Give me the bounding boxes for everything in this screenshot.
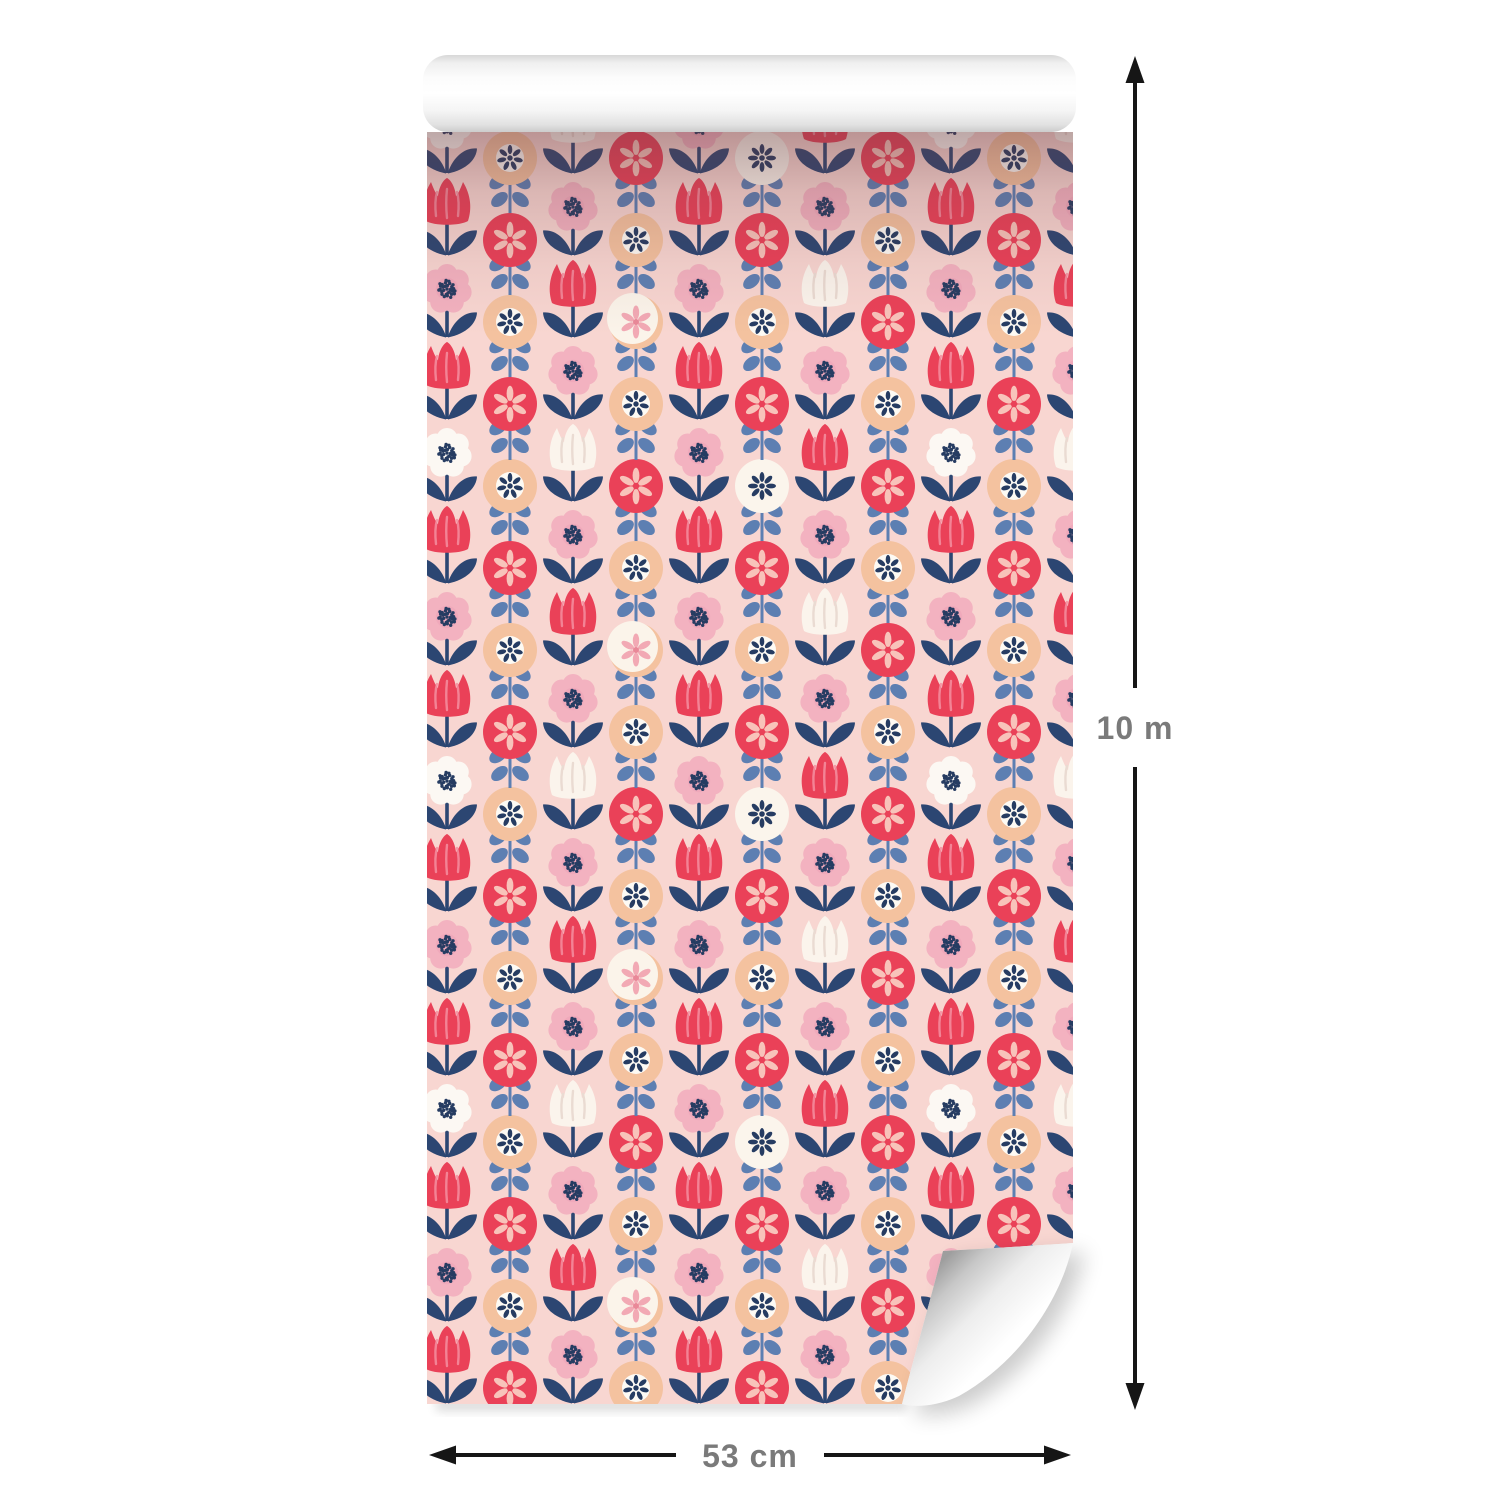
height-label: 10 m (1097, 710, 1174, 746)
wallpaper-roll-scene: 10 m 53 cm (0, 0, 1500, 1500)
roll-shadow-on-sheet (427, 132, 1073, 337)
roll-cylinder (423, 55, 1076, 132)
product-image: 10 m 53 cm (0, 0, 1500, 1500)
width-label: 53 cm (702, 1438, 798, 1474)
